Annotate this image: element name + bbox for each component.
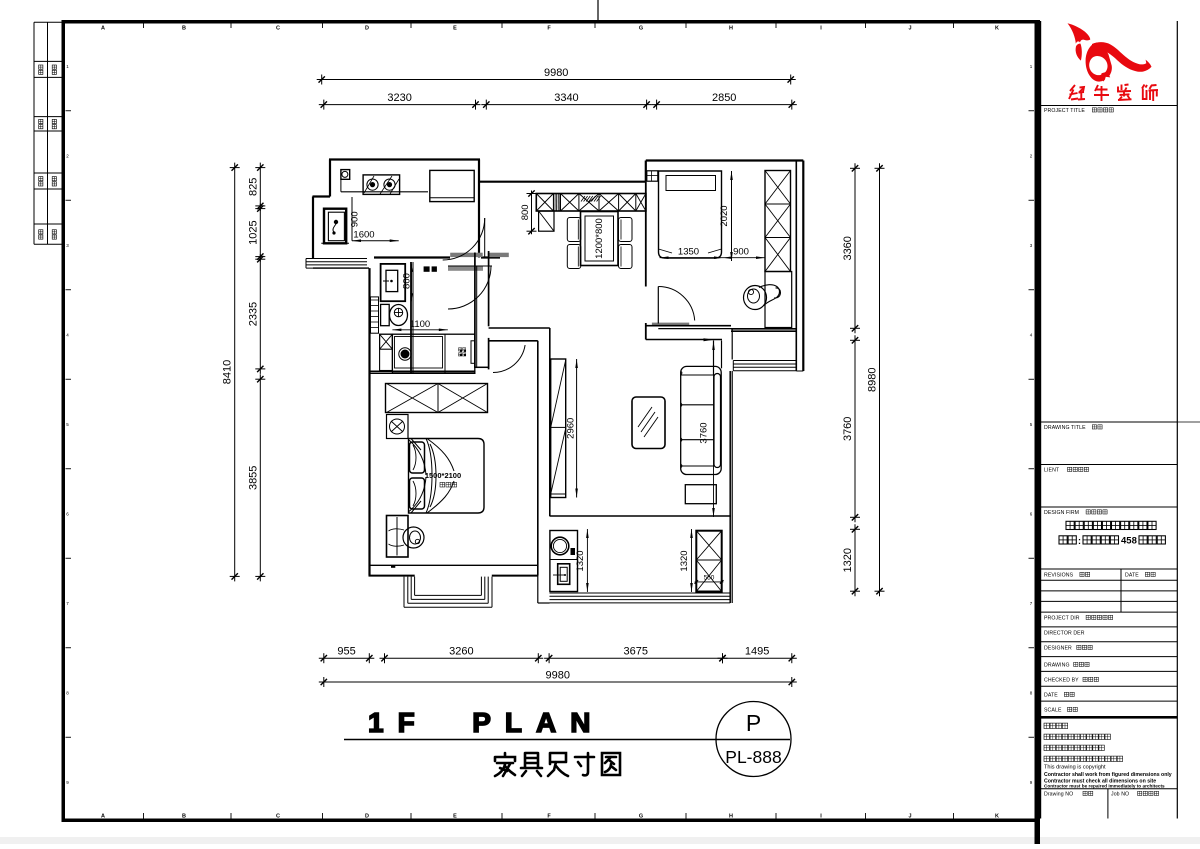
svg-text:E: E bbox=[453, 814, 457, 820]
svg-text:8980: 8980 bbox=[867, 368, 879, 392]
svg-text:3760: 3760 bbox=[699, 422, 710, 443]
svg-text:800: 800 bbox=[401, 273, 412, 289]
svg-text:H: H bbox=[729, 814, 733, 820]
svg-text:1320: 1320 bbox=[679, 550, 690, 571]
svg-text:DESIGN FIRM: DESIGN FIRM bbox=[1044, 510, 1079, 516]
svg-text:1320: 1320 bbox=[575, 550, 586, 571]
svg-text:DATE: DATE bbox=[1044, 693, 1058, 699]
svg-text:1350: 1350 bbox=[678, 247, 699, 258]
svg-text:DATE: DATE bbox=[1125, 573, 1139, 579]
svg-text:This drawing is copyright: This drawing is copyright bbox=[1044, 765, 1106, 771]
svg-text:D: D bbox=[365, 26, 369, 32]
svg-text:DIRECTOR DER: DIRECTOR DER bbox=[1044, 631, 1085, 637]
svg-text:2335: 2335 bbox=[247, 302, 259, 326]
svg-text:825: 825 bbox=[247, 178, 259, 196]
svg-text:3260: 3260 bbox=[449, 646, 473, 658]
svg-text:A: A bbox=[101, 814, 105, 820]
svg-text:1100: 1100 bbox=[410, 319, 430, 330]
svg-text:955: 955 bbox=[337, 646, 355, 658]
svg-text:PL-888: PL-888 bbox=[725, 747, 781, 767]
svg-text:J: J bbox=[908, 814, 911, 820]
svg-text:Drawing NO: Drawing NO bbox=[1044, 792, 1073, 798]
svg-text:1320: 1320 bbox=[842, 548, 854, 572]
svg-text:1025: 1025 bbox=[247, 220, 259, 244]
svg-text:8410: 8410 bbox=[222, 360, 234, 384]
svg-text:900: 900 bbox=[350, 211, 361, 227]
svg-text:J: J bbox=[908, 26, 911, 32]
svg-text:A: A bbox=[101, 26, 105, 32]
svg-text:900: 900 bbox=[733, 247, 749, 258]
svg-text:B: B bbox=[182, 814, 186, 820]
svg-text:2960: 2960 bbox=[566, 418, 577, 439]
svg-text:Contractor must be repaired im: Contractor must be repaired immediately … bbox=[1044, 784, 1165, 789]
svg-text:REVISIONS: REVISIONS bbox=[1044, 573, 1074, 579]
svg-text:CHECKED BY: CHECKED BY bbox=[1044, 678, 1079, 684]
svg-text:SCALE: SCALE bbox=[1044, 708, 1062, 714]
svg-text:DESIGNER: DESIGNER bbox=[1044, 646, 1072, 652]
svg-text:D: D bbox=[365, 814, 369, 820]
svg-text:458: 458 bbox=[1121, 536, 1137, 547]
svg-text:1F PLAN: 1F PLAN bbox=[368, 707, 604, 738]
svg-text:3230: 3230 bbox=[387, 92, 411, 104]
svg-text:3760: 3760 bbox=[842, 417, 854, 441]
svg-text:1500*2100: 1500*2100 bbox=[425, 471, 461, 480]
svg-text:2850: 2850 bbox=[712, 92, 736, 104]
svg-text:B: B bbox=[182, 26, 186, 32]
svg-text:G: G bbox=[639, 26, 643, 32]
svg-text:9980: 9980 bbox=[544, 67, 568, 79]
svg-text:Contractor shall work from fig: Contractor shall work from figured dimen… bbox=[1044, 772, 1172, 778]
svg-text:3360: 3360 bbox=[842, 236, 854, 260]
svg-text:3340: 3340 bbox=[554, 92, 578, 104]
svg-text:P: P bbox=[746, 710, 761, 736]
svg-text:C: C bbox=[276, 26, 280, 32]
svg-text:800: 800 bbox=[520, 204, 531, 220]
svg-text:G: G bbox=[639, 814, 643, 820]
svg-text:PROJECT DIR: PROJECT DIR bbox=[1044, 616, 1080, 622]
svg-text:3675: 3675 bbox=[624, 646, 648, 658]
svg-text:H: H bbox=[729, 26, 733, 32]
svg-text:DRAWING TITLE: DRAWING TITLE bbox=[1044, 425, 1086, 431]
svg-text:K: K bbox=[995, 814, 999, 820]
svg-text:9980: 9980 bbox=[546, 670, 570, 682]
svg-text:LIENT: LIENT bbox=[1044, 468, 1060, 474]
svg-text::: : bbox=[1078, 536, 1081, 546]
svg-text:DRAWING: DRAWING bbox=[1044, 663, 1070, 669]
svg-text:2020: 2020 bbox=[719, 205, 730, 226]
svg-text:3855: 3855 bbox=[247, 466, 259, 490]
svg-text:1495: 1495 bbox=[745, 646, 769, 658]
svg-text:E: E bbox=[453, 26, 457, 32]
svg-text:1200*800: 1200*800 bbox=[594, 218, 605, 259]
svg-text:C: C bbox=[276, 814, 280, 820]
svg-text:1600: 1600 bbox=[353, 230, 374, 241]
svg-text:550: 550 bbox=[704, 575, 715, 582]
svg-text:PROJECT TITLE: PROJECT TITLE bbox=[1044, 108, 1085, 114]
svg-text:Job NO: Job NO bbox=[1111, 792, 1129, 798]
svg-text:K: K bbox=[995, 26, 999, 32]
